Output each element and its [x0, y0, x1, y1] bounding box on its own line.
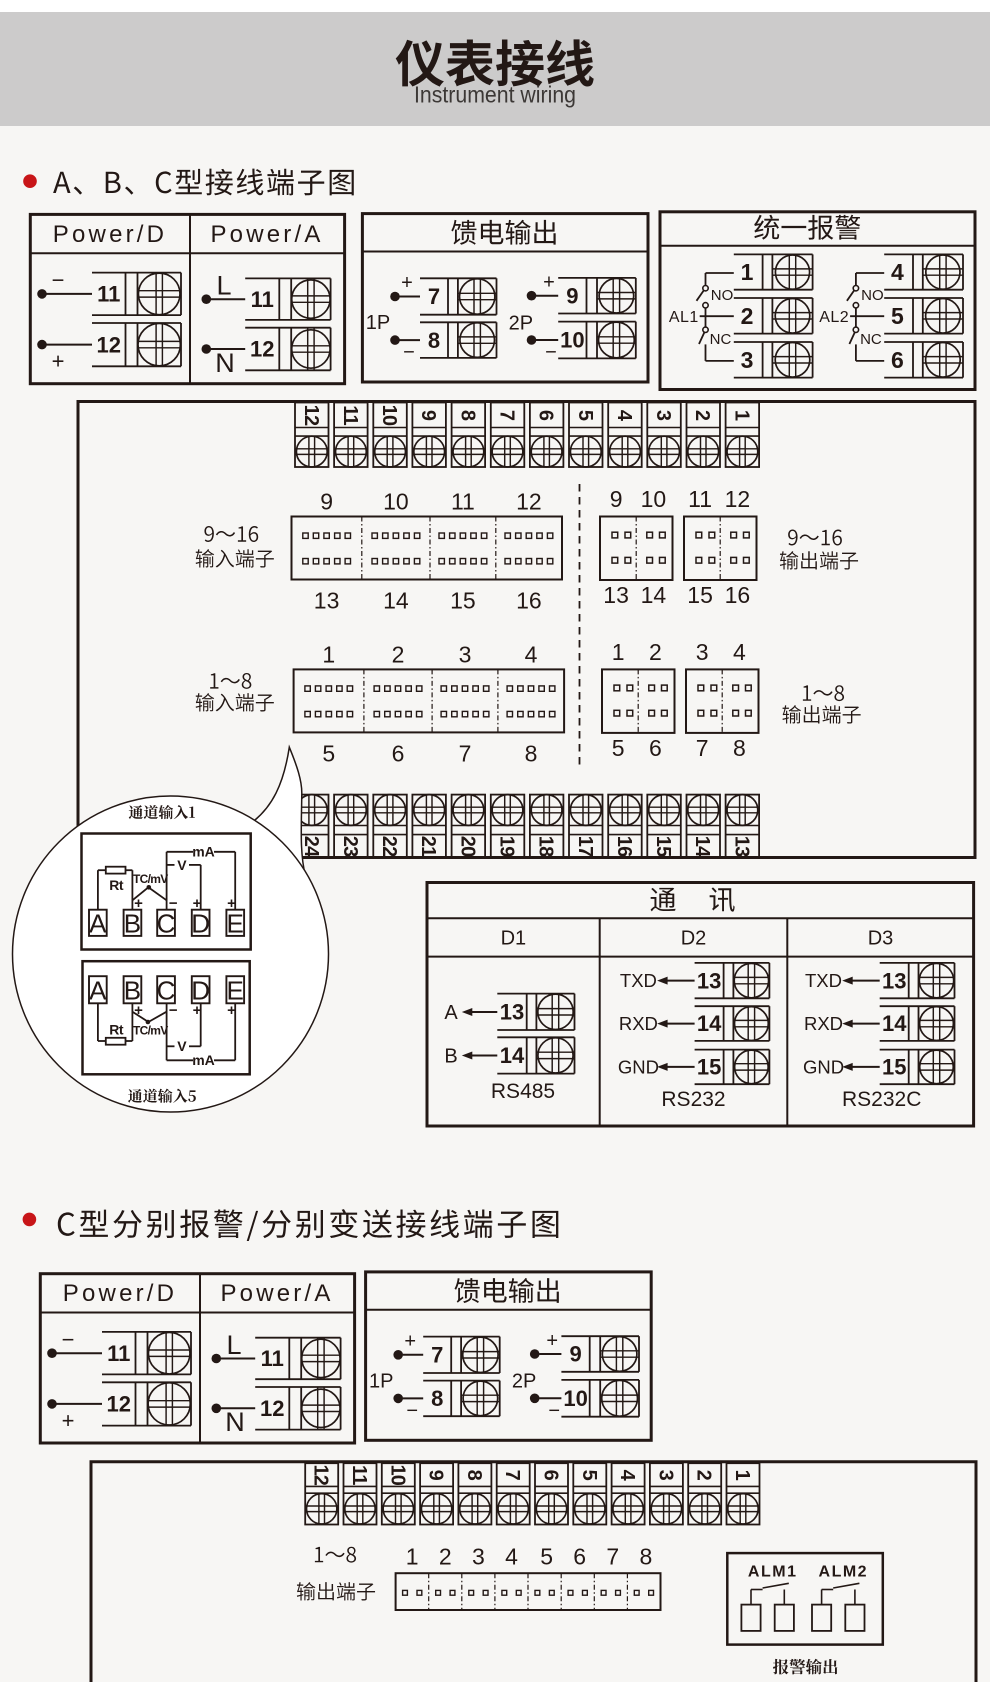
svg-text:6: 6: [891, 347, 904, 373]
svg-text:+: +: [193, 1002, 202, 1019]
svg-text:7: 7: [501, 1470, 523, 1481]
svg-text:12: 12: [310, 1464, 332, 1485]
svg-text:A: A: [89, 975, 107, 1005]
svg-text:12: 12: [300, 405, 322, 426]
svg-text:11: 11: [339, 405, 361, 425]
svg-text:15: 15: [697, 1055, 721, 1080]
svg-text:ALM1: ALM1: [748, 1563, 798, 1580]
svg-text:TC/mV: TC/mV: [133, 872, 168, 886]
svg-text:−: −: [52, 268, 65, 293]
svg-text:+: +: [543, 272, 555, 294]
svg-text:4: 4: [733, 639, 746, 665]
svg-text:6: 6: [392, 740, 405, 766]
svg-text:12: 12: [97, 332, 121, 357]
svg-text:9: 9: [569, 1342, 581, 1367]
svg-text:D2: D2: [681, 928, 707, 950]
svg-text:11: 11: [451, 489, 475, 515]
svg-text:+: +: [52, 349, 65, 374]
svg-text:NO: NO: [861, 287, 884, 304]
svg-text:V: V: [177, 1038, 187, 1054]
svg-text:13: 13: [730, 836, 752, 857]
svg-text:12: 12: [107, 1392, 131, 1417]
svg-text:B: B: [444, 1046, 457, 1068]
svg-text:9: 9: [417, 410, 439, 421]
svg-text:2: 2: [693, 1470, 715, 1481]
svg-text:24: 24: [300, 836, 322, 858]
svg-text:4: 4: [891, 259, 904, 285]
svg-text:11: 11: [97, 282, 120, 307]
svg-text:AL1: AL1: [669, 309, 699, 326]
svg-text:Power/A: Power/A: [220, 1280, 333, 1307]
svg-text:13: 13: [697, 968, 721, 993]
svg-text:V: V: [177, 857, 187, 873]
svg-text:18: 18: [535, 836, 557, 857]
svg-text:8: 8: [463, 1470, 485, 1481]
svg-text:11: 11: [261, 1346, 284, 1371]
svg-text:4: 4: [505, 1544, 518, 1570]
svg-text:5: 5: [891, 303, 904, 329]
svg-text:3: 3: [652, 410, 674, 421]
svg-text:13: 13: [500, 1000, 524, 1025]
svg-text:TC/mV: TC/mV: [133, 1024, 168, 1038]
svg-text:4: 4: [525, 641, 538, 667]
svg-text:+: +: [134, 895, 143, 912]
svg-text:−: −: [169, 1002, 178, 1019]
svg-text:mA: mA: [192, 1052, 215, 1068]
svg-text:2: 2: [392, 641, 405, 667]
svg-text:7: 7: [696, 735, 709, 761]
svg-text:3: 3: [459, 641, 472, 667]
svg-text:14: 14: [697, 1011, 722, 1036]
svg-text:−: −: [545, 342, 557, 364]
svg-text:9: 9: [320, 489, 333, 515]
svg-text:2: 2: [439, 1544, 452, 1570]
svg-text:6: 6: [535, 410, 557, 421]
svg-text:9: 9: [610, 486, 623, 512]
svg-text:10: 10: [383, 489, 409, 515]
svg-text:5: 5: [612, 735, 625, 761]
svg-text:23: 23: [339, 836, 361, 857]
svg-text:N: N: [215, 348, 235, 378]
svg-text:14: 14: [882, 1011, 907, 1036]
svg-text:2: 2: [649, 639, 662, 665]
svg-text:+: +: [404, 1330, 416, 1352]
svg-text:A: A: [89, 908, 107, 938]
svg-text:Power/D: Power/D: [63, 1280, 177, 1307]
svg-text:7: 7: [606, 1544, 619, 1570]
svg-text:2: 2: [741, 303, 754, 329]
svg-text:13: 13: [603, 582, 629, 608]
svg-text:L: L: [226, 1330, 241, 1360]
svg-text:E: E: [227, 908, 244, 938]
svg-text:16: 16: [613, 836, 635, 857]
svg-text:5: 5: [574, 410, 596, 421]
svg-text:1P: 1P: [366, 312, 390, 334]
svg-text:1: 1: [741, 259, 754, 285]
svg-text:12: 12: [260, 1396, 284, 1421]
svg-text:8: 8: [428, 328, 440, 353]
svg-text:B: B: [124, 908, 141, 938]
svg-text:NC: NC: [860, 331, 882, 348]
svg-text:11: 11: [688, 486, 712, 512]
svg-text:GND: GND: [803, 1056, 844, 1077]
svg-text:21: 21: [417, 836, 439, 857]
svg-text:10: 10: [378, 405, 400, 426]
svg-text:16: 16: [725, 582, 751, 608]
svg-text:−: −: [406, 1400, 418, 1422]
svg-text:mA: mA: [192, 844, 215, 860]
svg-text:10: 10: [386, 1464, 408, 1485]
svg-text:+: +: [62, 1408, 75, 1433]
svg-text:14: 14: [641, 582, 667, 608]
svg-text:9: 9: [566, 283, 578, 308]
svg-text:8: 8: [431, 1386, 443, 1411]
svg-text:10: 10: [560, 328, 584, 353]
svg-text:16: 16: [516, 588, 542, 614]
svg-text:+: +: [546, 1330, 558, 1352]
svg-text:Power/A: Power/A: [210, 221, 323, 248]
svg-text:A: A: [444, 1002, 458, 1024]
svg-text:8: 8: [456, 410, 478, 421]
svg-text:Rt: Rt: [109, 1021, 124, 1037]
svg-text:15: 15: [687, 582, 713, 608]
svg-text:−: −: [548, 1400, 560, 1422]
svg-text:9: 9: [425, 1470, 447, 1481]
svg-text:14: 14: [691, 836, 713, 858]
svg-text:1: 1: [612, 639, 625, 665]
svg-text:13: 13: [882, 968, 906, 993]
svg-text:6: 6: [649, 735, 662, 761]
svg-text:Instrument wiring: Instrument wiring: [414, 82, 576, 108]
svg-text:12: 12: [250, 337, 274, 362]
svg-text:+: +: [401, 272, 413, 294]
svg-text:6: 6: [540, 1470, 562, 1481]
svg-text:ALM2: ALM2: [819, 1563, 869, 1580]
svg-text:1: 1: [730, 410, 752, 421]
svg-text:15: 15: [450, 588, 476, 614]
svg-text:RS232: RS232: [661, 1088, 725, 1111]
svg-text:TXD: TXD: [620, 970, 657, 991]
svg-text:−: −: [169, 895, 178, 912]
svg-text:8: 8: [640, 1544, 653, 1570]
svg-text:1P: 1P: [369, 1370, 393, 1392]
svg-text:RS485: RS485: [491, 1080, 555, 1103]
svg-text:D3: D3: [868, 928, 894, 950]
svg-text:1: 1: [322, 641, 335, 667]
svg-text:5: 5: [578, 1470, 600, 1481]
svg-text:2P: 2P: [509, 312, 533, 334]
svg-text:7: 7: [431, 1343, 443, 1368]
svg-text:+: +: [227, 895, 236, 912]
svg-text:13: 13: [314, 588, 340, 614]
svg-text:RS232C: RS232C: [842, 1088, 921, 1111]
svg-text:12: 12: [725, 486, 751, 512]
svg-text:20: 20: [456, 836, 478, 857]
svg-text:15: 15: [882, 1055, 906, 1080]
svg-text:10: 10: [563, 1386, 587, 1411]
svg-text:RXD: RXD: [804, 1013, 843, 1034]
svg-text:8: 8: [525, 740, 538, 766]
svg-text:3: 3: [741, 347, 754, 373]
svg-text:5: 5: [322, 740, 335, 766]
svg-text:4: 4: [616, 1470, 638, 1482]
svg-text:12: 12: [516, 489, 542, 515]
svg-text:11: 11: [251, 287, 274, 312]
svg-text:−: −: [403, 342, 415, 364]
svg-text:11: 11: [107, 1341, 130, 1366]
svg-text:D1: D1: [501, 928, 527, 950]
svg-text:19: 19: [496, 836, 518, 857]
svg-text:5: 5: [540, 1544, 553, 1570]
svg-text:17: 17: [574, 836, 596, 857]
svg-text:22: 22: [378, 836, 400, 857]
svg-text:N: N: [225, 1407, 245, 1437]
svg-text:7: 7: [496, 410, 518, 421]
svg-text:14: 14: [383, 588, 409, 614]
svg-text:+: +: [227, 1002, 236, 1019]
svg-text:11: 11: [348, 1465, 370, 1485]
svg-text:NO: NO: [711, 287, 734, 304]
svg-text:AL2: AL2: [819, 309, 849, 326]
svg-text:Power/D: Power/D: [53, 221, 167, 248]
svg-text:NC: NC: [710, 331, 732, 348]
svg-text:+: +: [193, 895, 202, 912]
svg-text:15: 15: [652, 836, 674, 857]
svg-text:GND: GND: [618, 1056, 659, 1077]
svg-text:1: 1: [731, 1470, 753, 1481]
svg-text:Rt: Rt: [109, 877, 124, 893]
svg-text:3: 3: [472, 1544, 485, 1570]
svg-text:−: −: [62, 1327, 75, 1352]
svg-text:RXD: RXD: [619, 1013, 658, 1034]
svg-text:14: 14: [500, 1043, 525, 1068]
svg-text:7: 7: [459, 740, 472, 766]
svg-text:D: D: [191, 908, 210, 938]
svg-text:3: 3: [696, 639, 709, 665]
svg-text:1: 1: [406, 1544, 419, 1570]
svg-text:C: C: [157, 908, 176, 938]
svg-text:10: 10: [641, 486, 667, 512]
svg-text:6: 6: [573, 1544, 586, 1570]
svg-text:8: 8: [733, 735, 746, 761]
svg-text:2: 2: [691, 410, 713, 421]
svg-text:7: 7: [428, 284, 440, 309]
svg-text:+: +: [134, 1002, 143, 1019]
svg-text:2P: 2P: [512, 1371, 536, 1393]
svg-text:TXD: TXD: [805, 970, 842, 991]
svg-text:L: L: [216, 271, 231, 301]
svg-text:4: 4: [613, 410, 635, 422]
svg-text:3: 3: [654, 1470, 676, 1481]
